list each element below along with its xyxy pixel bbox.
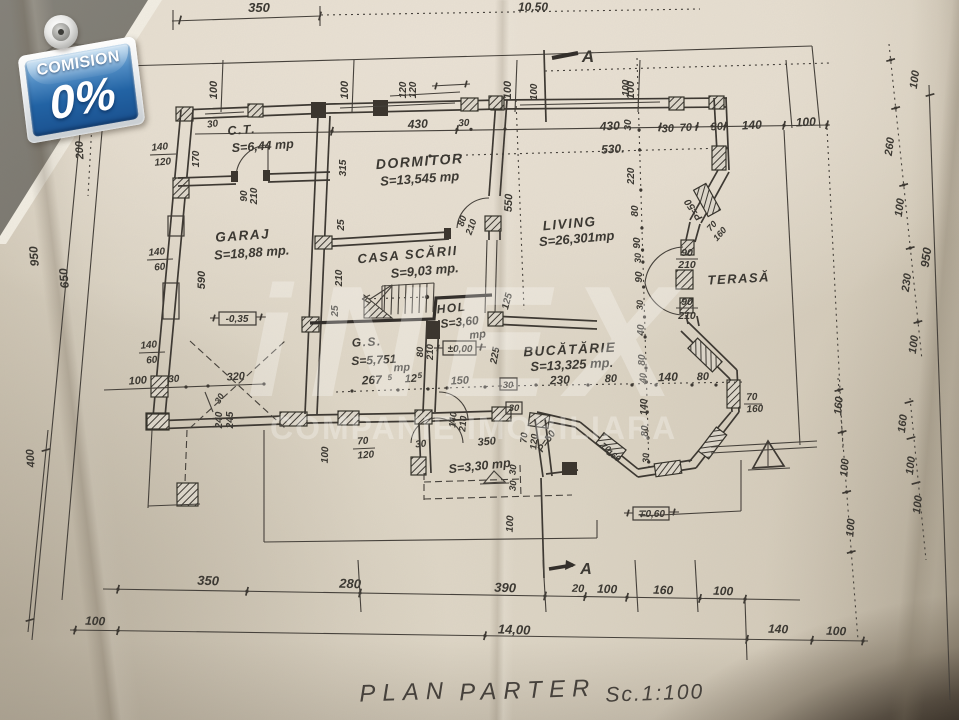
svg-text:A: A [579, 561, 592, 578]
svg-text:80: 80 [630, 205, 641, 217]
svg-text:140: 140 [151, 141, 169, 153]
svg-text:30: 30 [635, 300, 645, 310]
svg-text:60: 60 [154, 262, 166, 274]
svg-text:100: 100 [908, 69, 923, 90]
svg-text:30: 30 [508, 463, 520, 475]
svg-text:S=18,88 mp.: S=18,88 mp. [213, 242, 289, 262]
svg-text:100: 100 [621, 79, 632, 96]
svg-text:14,00: 14,00 [498, 621, 532, 637]
svg-text:S=13,545 mp: S=13,545 mp [380, 168, 460, 188]
svg-text:80: 80 [640, 425, 651, 437]
svg-text:100: 100 [904, 455, 918, 476]
svg-text:125: 125 [500, 291, 515, 310]
svg-text:100: 100 [339, 80, 351, 99]
svg-text:210: 210 [249, 187, 260, 205]
svg-text:390: 390 [494, 580, 517, 596]
svg-text:140: 140 [639, 398, 650, 415]
svg-text:90: 90 [239, 190, 250, 202]
svg-text:140: 140 [148, 246, 166, 258]
svg-text:100: 100 [911, 494, 925, 515]
svg-text:25: 25 [336, 219, 347, 232]
svg-text:A: A [581, 47, 594, 66]
svg-text:GARAJ: GARAJ [215, 226, 271, 245]
svg-text:140: 140 [741, 117, 762, 132]
svg-text:315: 315 [338, 159, 349, 176]
svg-text:160: 160 [832, 395, 846, 415]
svg-text:CASA SCĂRII: CASA SCĂRII [357, 243, 458, 267]
svg-text:430: 430 [598, 118, 620, 133]
svg-text:160: 160 [746, 404, 764, 416]
svg-text:100: 100 [838, 457, 852, 477]
svg-text:80: 80 [697, 371, 711, 383]
svg-text:30: 30 [415, 439, 427, 451]
svg-text:140: 140 [140, 339, 158, 351]
svg-text:170: 170 [191, 150, 202, 167]
svg-text:70: 70 [746, 392, 758, 404]
svg-text:S=9,03 mp.: S=9,03 mp. [390, 260, 459, 281]
svg-text:80: 80 [415, 346, 426, 357]
svg-text:100: 100 [844, 517, 858, 537]
svg-text:60: 60 [146, 355, 158, 367]
svg-text:30: 30 [633, 253, 643, 263]
svg-text:100: 100 [625, 80, 637, 99]
svg-text:30: 30 [641, 453, 651, 463]
svg-text:225: 225 [488, 346, 502, 366]
svg-text:140: 140 [768, 622, 789, 637]
svg-text:210: 210 [677, 310, 696, 322]
svg-text:G.S.: G.S. [351, 334, 382, 350]
svg-text:5: 5 [387, 373, 392, 382]
svg-text:120: 120 [154, 156, 172, 168]
svg-text:160: 160 [711, 225, 728, 243]
svg-text:20: 20 [571, 583, 586, 595]
svg-text:100: 100 [597, 582, 618, 597]
svg-text:200: 200 [73, 140, 86, 161]
svg-text:S=5,751: S=5,751 [351, 352, 397, 368]
svg-text:230: 230 [549, 373, 571, 388]
svg-text:430: 430 [406, 116, 428, 131]
svg-text:mp: mp [469, 328, 487, 342]
svg-text:90: 90 [634, 271, 645, 283]
svg-text:25: 25 [330, 305, 341, 318]
svg-text:70: 70 [519, 431, 531, 443]
svg-text:PLAN: PLAN [359, 677, 451, 707]
svg-text:30: 30 [206, 118, 219, 131]
svg-text:80: 80 [605, 373, 619, 385]
svg-text:30: 30 [509, 403, 520, 414]
svg-text:100: 100 [907, 334, 922, 355]
svg-text:120: 120 [398, 81, 409, 98]
svg-text:BUCĂTĂRIE: BUCĂTĂRIE [523, 340, 617, 360]
svg-text:Sc.1:100: Sc.1:100 [605, 680, 705, 706]
svg-text:260: 260 [883, 136, 898, 158]
svg-text:mp: mp [393, 362, 410, 375]
svg-text:100: 100 [320, 446, 332, 463]
svg-text:40: 40 [636, 324, 647, 337]
svg-text:10.50: 10.50 [518, 0, 548, 14]
svg-text:650: 650 [56, 267, 72, 288]
svg-text:120: 120 [357, 449, 375, 461]
svg-text:±0,00: ±0,00 [448, 344, 473, 355]
svg-text:100: 100 [505, 515, 517, 533]
svg-text:100: 100 [502, 80, 514, 99]
svg-text:∓0,60: ∓0,60 [637, 509, 665, 520]
svg-text:100: 100 [893, 197, 908, 218]
svg-text:S=3,60: S=3,60 [440, 313, 480, 331]
svg-text:5: 5 [417, 371, 422, 380]
svg-text:950: 950 [918, 246, 935, 268]
svg-text:100: 100 [529, 83, 540, 100]
svg-text:100: 100 [826, 624, 847, 639]
svg-text:30: 30 [458, 118, 470, 130]
svg-text:30: 30 [661, 123, 675, 136]
svg-text:100: 100 [85, 614, 106, 629]
svg-text:-0,35: -0,35 [226, 314, 249, 325]
svg-text:160: 160 [605, 447, 623, 464]
svg-text:120: 120 [408, 81, 419, 98]
svg-text:70: 70 [679, 122, 693, 135]
svg-text:C.T.: C.T. [227, 122, 257, 138]
svg-text:100: 100 [713, 584, 734, 599]
svg-text:TERASĂ: TERASĂ [707, 269, 770, 287]
svg-text:40: 40 [638, 373, 648, 384]
svg-text:DORMITOR: DORMITOR [375, 150, 464, 172]
svg-text:120: 120 [528, 433, 540, 450]
svg-text:400: 400 [24, 448, 38, 469]
svg-text:P=50: P=50 [536, 428, 559, 454]
svg-text:280: 280 [338, 576, 362, 592]
svg-text:350: 350 [477, 435, 497, 449]
svg-text:210: 210 [677, 259, 696, 271]
svg-text:160: 160 [896, 413, 910, 434]
svg-text:100: 100 [128, 374, 148, 387]
svg-text:140: 140 [447, 411, 459, 428]
svg-text:30: 30 [213, 392, 227, 406]
svg-text:30: 30 [710, 121, 724, 134]
svg-text:P=50: P=50 [682, 196, 705, 222]
svg-text:210: 210 [425, 343, 436, 361]
svg-text:90: 90 [681, 247, 693, 259]
svg-text:100: 100 [795, 114, 816, 129]
svg-text:HOL: HOL [436, 300, 467, 317]
svg-text:90: 90 [632, 237, 643, 249]
svg-text:70: 70 [705, 219, 719, 233]
svg-text:S=26,301mp: S=26,301mp [538, 228, 615, 250]
svg-text:12: 12 [404, 373, 417, 386]
svg-text:220: 220 [626, 167, 637, 185]
svg-text:550: 550 [503, 193, 516, 213]
svg-text:S=3,30 mp: S=3,30 mp [448, 456, 512, 476]
svg-text:350: 350 [248, 0, 270, 15]
svg-text:30: 30 [168, 374, 180, 386]
svg-text:160: 160 [653, 583, 674, 598]
svg-text:245: 245 [225, 411, 236, 429]
svg-text:30: 30 [508, 479, 520, 491]
svg-text:240: 240 [214, 411, 225, 429]
svg-text:320: 320 [226, 370, 246, 383]
svg-text:210: 210 [334, 269, 345, 287]
svg-text:230: 230 [900, 272, 915, 294]
svg-text:530.: 530. [601, 141, 625, 156]
svg-text:140: 140 [658, 370, 679, 385]
svg-text:150: 150 [450, 374, 470, 387]
svg-text:590: 590 [196, 270, 208, 289]
svg-text:950: 950 [26, 245, 42, 266]
svg-text:100: 100 [208, 80, 220, 99]
svg-text:30: 30 [503, 380, 514, 391]
svg-text:80: 80 [637, 354, 648, 366]
svg-text:LIVING: LIVING [542, 214, 597, 234]
svg-text:210: 210 [463, 217, 479, 237]
svg-text:S=13,325 mp.: S=13,325 mp. [530, 355, 613, 374]
svg-text:PARTER: PARTER [459, 675, 597, 707]
svg-text:350: 350 [197, 573, 220, 589]
svg-text:210: 210 [457, 415, 469, 433]
svg-text:70: 70 [599, 441, 613, 455]
svg-text:90: 90 [681, 296, 693, 308]
svg-text:267: 267 [360, 372, 383, 387]
svg-text:70: 70 [357, 436, 369, 448]
svg-text:30: 30 [623, 119, 634, 131]
svg-text:80: 80 [456, 214, 470, 228]
svg-text:S=6,44 mp: S=6,44 mp [231, 137, 294, 155]
